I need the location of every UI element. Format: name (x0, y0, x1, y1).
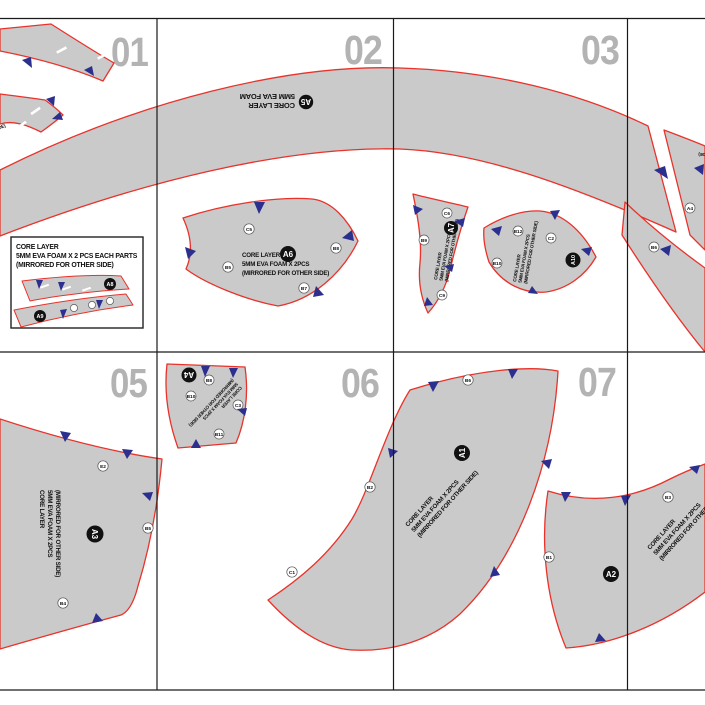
notch-dot (70, 304, 77, 311)
piece-a6-label-line1: CORE LAYER (242, 252, 281, 259)
notch-label: B3 (665, 495, 671, 501)
notch-label: B11 (215, 432, 224, 438)
notch-dot (88, 301, 95, 308)
piece-a3-outline (0, 419, 162, 649)
piece-a7: A7 CORE LAYER 5MM EVA FOAM X 2PCS (MIRRO… (413, 194, 468, 313)
notch-label: C9 (439, 293, 445, 299)
piece-a1-outline (268, 369, 558, 650)
piece-a3-label-line3: (MIRRORED FOR OTHER SIDE) (54, 490, 61, 577)
page-number-02: 02 (344, 27, 382, 73)
legend-box-line3: (MIRRORED FOR OTHER SIDE) (16, 262, 114, 269)
notch-label: B5 (225, 265, 231, 271)
piece-a4: A4 CORE LAYER 5MM EVA FOAM X 2PCS (MIRRO… (166, 364, 247, 448)
notch-label: B2 (367, 485, 373, 491)
pattern-sheet-page: 01 02 03 05 06 07 5MM EVA FOAM X 2PCS (M… (0, 0, 705, 705)
notch-label: B8 (333, 246, 339, 252)
notch-label: B1 (546, 555, 552, 561)
notch-label: B12 (514, 229, 523, 235)
piece-a5-label-line1: CORE LAYER (248, 101, 295, 110)
piece-a5-badge-text: A5 (300, 97, 311, 106)
piece-a3: A3 (MIRRORED FOR OTHER SIDE) 5MM EVA FOA… (0, 419, 162, 649)
page-number-05: 05 (110, 360, 147, 406)
page-number-01: 01 (111, 29, 148, 75)
pattern-sheet: 01 02 03 05 06 07 5MM EVA FOAM X 2PCS (M… (0, 0, 705, 705)
piece-a1-badge-text: A1 (458, 447, 467, 458)
notch-triangle (22, 57, 32, 68)
legend-strip-top-badge-text: A8 (107, 282, 114, 288)
piece-edge-top-label: (MIRRORED FOR OTHER SIDE) (698, 152, 705, 157)
piece-a4-badge-text: A4 (183, 370, 194, 379)
piece-a1: A1 CORE LAYER 5MM EVA FOAM X 2PCS (MIRRO… (268, 369, 558, 650)
notch-label: B4 (60, 601, 66, 607)
notch-label: B10 (187, 394, 196, 400)
notch-label: C6 (444, 211, 450, 217)
notch-label: E2 (100, 464, 106, 470)
piece-a5-outline (0, 68, 676, 236)
notch-label: B8 (206, 378, 212, 384)
strip-piece-bottom: 5MM EVA FOAM X 2PCS (MIRRORED FOR OTHER … (0, 94, 63, 152)
notch-label: C5 (246, 227, 252, 233)
strip-piece-top: 5MM EVA FOAM X 2PCS (MIRRORED FOR OTHER … (0, 24, 114, 89)
piece-a10: A10 CORE LAYER 5MM EVA FOAM X 2PCS (MIRR… (484, 210, 596, 294)
piece-a6: CORE LAYER 5MM EVA FOAM X 2PCS (MIRRORED… (183, 198, 358, 306)
notch-label: B5 (145, 526, 151, 532)
notch-label: B10 (493, 261, 502, 267)
notch-label: A4 (687, 206, 693, 212)
piece-edge-top: (MIRRORED FOR OTHER SIDE) A4 (664, 130, 705, 250)
piece-a3-label-line1: CORE LAYER (38, 490, 45, 529)
legend-box-line2: 5MM EVA FOAM X 2 PCS EACH PARTS (16, 253, 138, 260)
piece-a2: A2 CORE LAYER 5MM EVA FOAM X 2PCS (MIRRO… (544, 464, 705, 648)
notch-label: B7 (301, 286, 307, 292)
piece-a10-outline (484, 211, 596, 292)
notch-label: B9 (421, 238, 427, 244)
notch-label: B6 (651, 245, 657, 251)
piece-a2-outline (545, 464, 705, 648)
piece-a6-label-line3: (MIRRORED FOR OTHER SIDE) (242, 270, 329, 277)
notch-label: B6 (465, 378, 471, 384)
piece-a6-label-line2: 5MM EVA FOAM X 2PCS (242, 261, 309, 268)
legend-box: CORE LAYER 5MM EVA FOAM X 2 PCS EACH PAR… (11, 237, 143, 328)
piece-a6-badge-text: A6 (283, 250, 294, 259)
strip-bottom-label-line3: (MIRRORED FOR OTHER SIDE) (0, 123, 7, 153)
page-number-07: 07 (578, 359, 616, 405)
notch-dot (106, 297, 113, 304)
piece-a3-badge-text: A3 (90, 529, 99, 540)
piece-a5-label-line2: 5MM EVA FOAM (240, 92, 295, 101)
piece-a5-band: A5 CORE LAYER 5MM EVA FOAM (0, 68, 676, 236)
piece-a2-badge-text: A2 (606, 570, 617, 579)
piece-edge-top-outline (664, 130, 705, 250)
legend-strip-bottom-badge-text: A9 (37, 314, 44, 320)
legend-box-line1: CORE LAYER (16, 244, 59, 251)
page-number-06: 06 (341, 360, 379, 406)
notch-label: C2 (548, 236, 554, 242)
notch-label: C3 (235, 403, 241, 409)
page-number-03: 03 (581, 27, 619, 73)
piece-a3-label-line2: 5MM EVA FOAM X 2PCS (46, 490, 53, 557)
piece-a10-badge-text: A10 (571, 255, 577, 265)
notch-label: C1 (289, 570, 295, 576)
